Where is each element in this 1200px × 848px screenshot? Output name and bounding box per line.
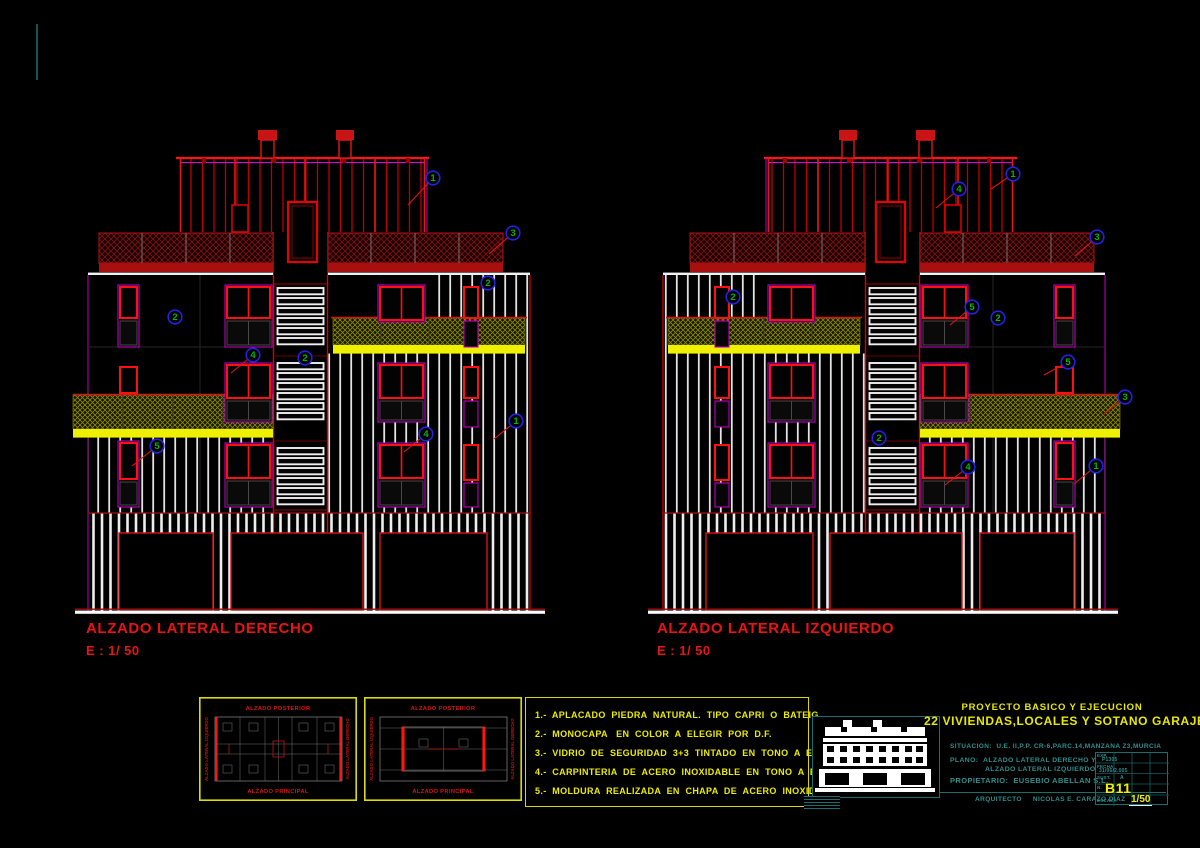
- plano-row: PLANO: ALZADO LATERAL DERECHO Y: [950, 757, 1096, 764]
- svg-text:3: 3: [1094, 232, 1099, 243]
- svg-text:2: 2: [730, 292, 735, 303]
- propietario-row: PROPIETARIO: EUSEBIO ABELLAN S.L.: [950, 776, 1109, 785]
- stamp-num-label: N.: [1097, 785, 1102, 790]
- situacion-value: U.E. II,P.P. CR-6,PARC.14,MANZANA Z3,MUR…: [996, 743, 1161, 750]
- stamp-fecha-value: 31/06/2.005: [1099, 768, 1128, 774]
- arquitecto-label: ARQUITECTO: [975, 796, 1022, 803]
- legend-item: 3.- VIDRIO DE SEGURIDAD 3+3 TINTADO EN T…: [535, 741, 808, 760]
- keyplan-label-right: ALZADO LATERAL DERECHO: [345, 718, 350, 780]
- situacion-row: SITUACION: U.E. II,P.P. CR-6,PARC.14,MAN…: [950, 743, 1161, 750]
- keyplan-label-bottom: ALZADO PRINCIPAL: [412, 789, 474, 795]
- propietario-label: PROPIETARIO:: [950, 776, 1008, 785]
- svg-text:1: 1: [430, 173, 436, 184]
- svg-text:4: 4: [965, 462, 971, 473]
- stamp-exp-value: P1305: [1102, 757, 1117, 763]
- plano-row2: ALZADO LATERAL IZQUIERDO: [985, 766, 1096, 773]
- svg-text:2: 2: [172, 312, 177, 323]
- keyplan-label-top: ALZADO POSTERIOR: [246, 706, 311, 712]
- svg-text:4: 4: [956, 184, 962, 195]
- legend-item: 1.- APLACADO PIEDRA NATURAL. TIPO CAPRI …: [535, 703, 808, 722]
- titleblock-stamp: EXP. P1305 FECHA 31/06/2.005 SUST. A N. …: [1095, 752, 1168, 805]
- svg-text:5: 5: [969, 302, 975, 313]
- titleblock: PROYECTO BASICO Y EJECUCION 22 VIVIENDAS…: [804, 697, 1196, 822]
- plano-label: PLANO:: [950, 757, 978, 764]
- stamp-escala-value: 1/50: [1129, 794, 1152, 806]
- plano-line1: ALZADO LATERAL DERECHO Y: [983, 757, 1096, 764]
- legend-item: 4.- CARPINTERIA DE ACERO INOXIDABLE EN T…: [535, 760, 808, 779]
- keyplan-label-left: ALZADO LATERAL IZQUIERDO: [204, 716, 209, 780]
- elevation-scale-izquierdo: E : 1/ 50: [657, 643, 711, 658]
- svg-text:5: 5: [1065, 357, 1071, 368]
- keyplan-label-left: ALZADO LATERAL IZQUIERDO: [369, 716, 374, 780]
- svg-text:1: 1: [1010, 169, 1016, 180]
- legend-box: 1.- APLACADO PIEDRA NATURAL. TIPO CAPRI …: [525, 697, 809, 807]
- situacion-label: SITUACION:: [950, 743, 992, 750]
- legend-item: 5.- MOLDURA REALIZADA EN CHAPA DE ACERO …: [535, 779, 808, 798]
- keyplan-label-right: ALZADO LATERAL DERECHO: [510, 718, 515, 780]
- svg-text:3: 3: [510, 228, 515, 239]
- plano-line2: ALZADO LATERAL IZQUIERDO: [985, 766, 1096, 773]
- elevation-izquierdo-drawing: 1 4 3 2 5 2 5 3 2 4 1: [648, 125, 1118, 615]
- svg-text:2: 2: [302, 353, 307, 364]
- sheet-border-mark: [36, 24, 38, 80]
- svg-text:4: 4: [250, 350, 256, 361]
- project-title-line1: PROYECTO BASICO Y EJECUCION: [932, 702, 1172, 713]
- svg-text:5: 5: [154, 441, 160, 452]
- elevation-derecho-drawing: 1 3 2 2 4 2 5 4 1: [75, 125, 545, 615]
- svg-text:2: 2: [876, 433, 881, 444]
- cad-sheet: 1 3 2 2 4 2 5 4 1: [0, 0, 1200, 848]
- building-silhouette: [812, 716, 940, 798]
- keyplan-label-top: ALZADO POSTERIOR: [411, 706, 476, 712]
- svg-text:1: 1: [513, 416, 519, 427]
- elevation-title-derecho: ALZADO LATERAL DERECHO: [86, 620, 314, 637]
- elevation-title-izquierdo: ALZADO LATERAL IZQUIERDO: [657, 620, 894, 637]
- stamp-num-value: B11: [1105, 780, 1131, 796]
- svg-text:1: 1: [1093, 461, 1099, 472]
- titleblock-hatch-mark: [804, 796, 840, 811]
- stamp-escala-label: ESCALA: [1097, 798, 1117, 803]
- svg-text:2: 2: [995, 313, 1000, 324]
- keyplan-floor: ALZADO POSTERIOR ALZADO PRINCIPAL ALZADO…: [199, 697, 357, 801]
- elevation-scale-derecho: E : 1/ 50: [86, 643, 140, 658]
- keyplan-roof: ALZADO POSTERIOR ALZADO PRINCIPAL ALZADO…: [364, 697, 522, 801]
- svg-text:2: 2: [485, 278, 490, 289]
- project-title-line2: 22 VIVIENDAS,LOCALES Y SOTANO GARAJE: [924, 714, 1180, 728]
- svg-text:4: 4: [423, 429, 429, 440]
- keyplan-label-bottom: ALZADO PRINCIPAL: [247, 789, 309, 795]
- svg-text:3: 3: [1122, 392, 1127, 403]
- legend-item: 2.- MONOCAPA EN COLOR A ELEGIR POR D.F.: [535, 722, 808, 741]
